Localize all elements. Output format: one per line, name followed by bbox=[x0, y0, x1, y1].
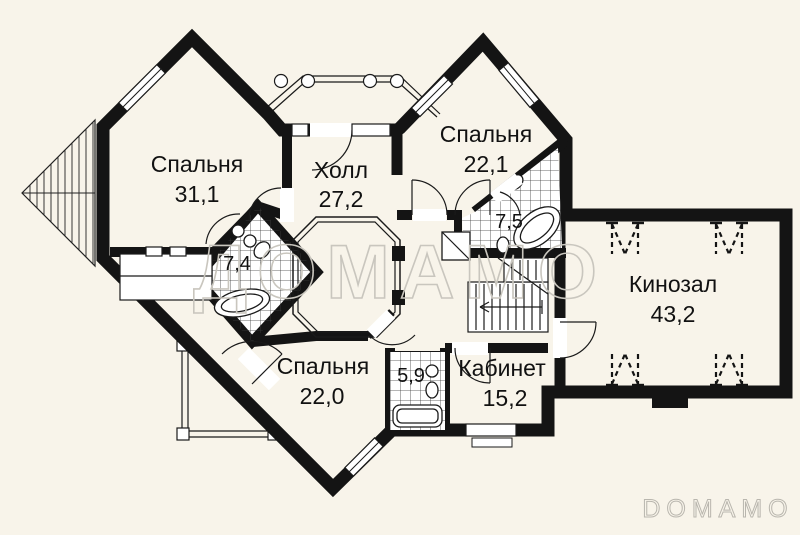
label-hall-name: Холл bbox=[314, 157, 368, 183]
label-bath-bottom-area: 5,9 bbox=[397, 365, 425, 387]
label-bath-top-area: 7,5 bbox=[495, 211, 523, 233]
bathroom-5-9 bbox=[390, 352, 445, 430]
watermark-corner: DOMAMO bbox=[642, 495, 793, 523]
label-office-area: 15,2 bbox=[483, 385, 528, 411]
label-bedroom3-area: 22,0 bbox=[300, 383, 345, 409]
wall-bump bbox=[652, 396, 688, 408]
watermark-center: ДОМАМО bbox=[193, 230, 607, 315]
label-bedroom1-area: 31,1 bbox=[175, 181, 220, 207]
label-cinema-name: Кинозал bbox=[629, 271, 717, 297]
label-bath-left-area: 7,4 bbox=[223, 253, 251, 275]
label-bedroom2-name: Спальня bbox=[440, 121, 532, 147]
label-cinema-area: 43,2 bbox=[651, 301, 696, 327]
label-bedroom1-name: Спальня bbox=[151, 151, 243, 177]
label-bedroom3-name: Спальня bbox=[277, 353, 369, 379]
floor-plan-drawing: ДОМАМО Спальня 31,1 Холл 27,2 Спальня 22… bbox=[0, 0, 800, 535]
floor-plan: ДОМАМО Спальня 31,1 Холл 27,2 Спальня 22… bbox=[0, 0, 800, 535]
label-bedroom2-area: 22,1 bbox=[464, 151, 509, 177]
label-office-name: Кабинет bbox=[458, 355, 546, 381]
label-hall-area: 27,2 bbox=[319, 186, 364, 212]
